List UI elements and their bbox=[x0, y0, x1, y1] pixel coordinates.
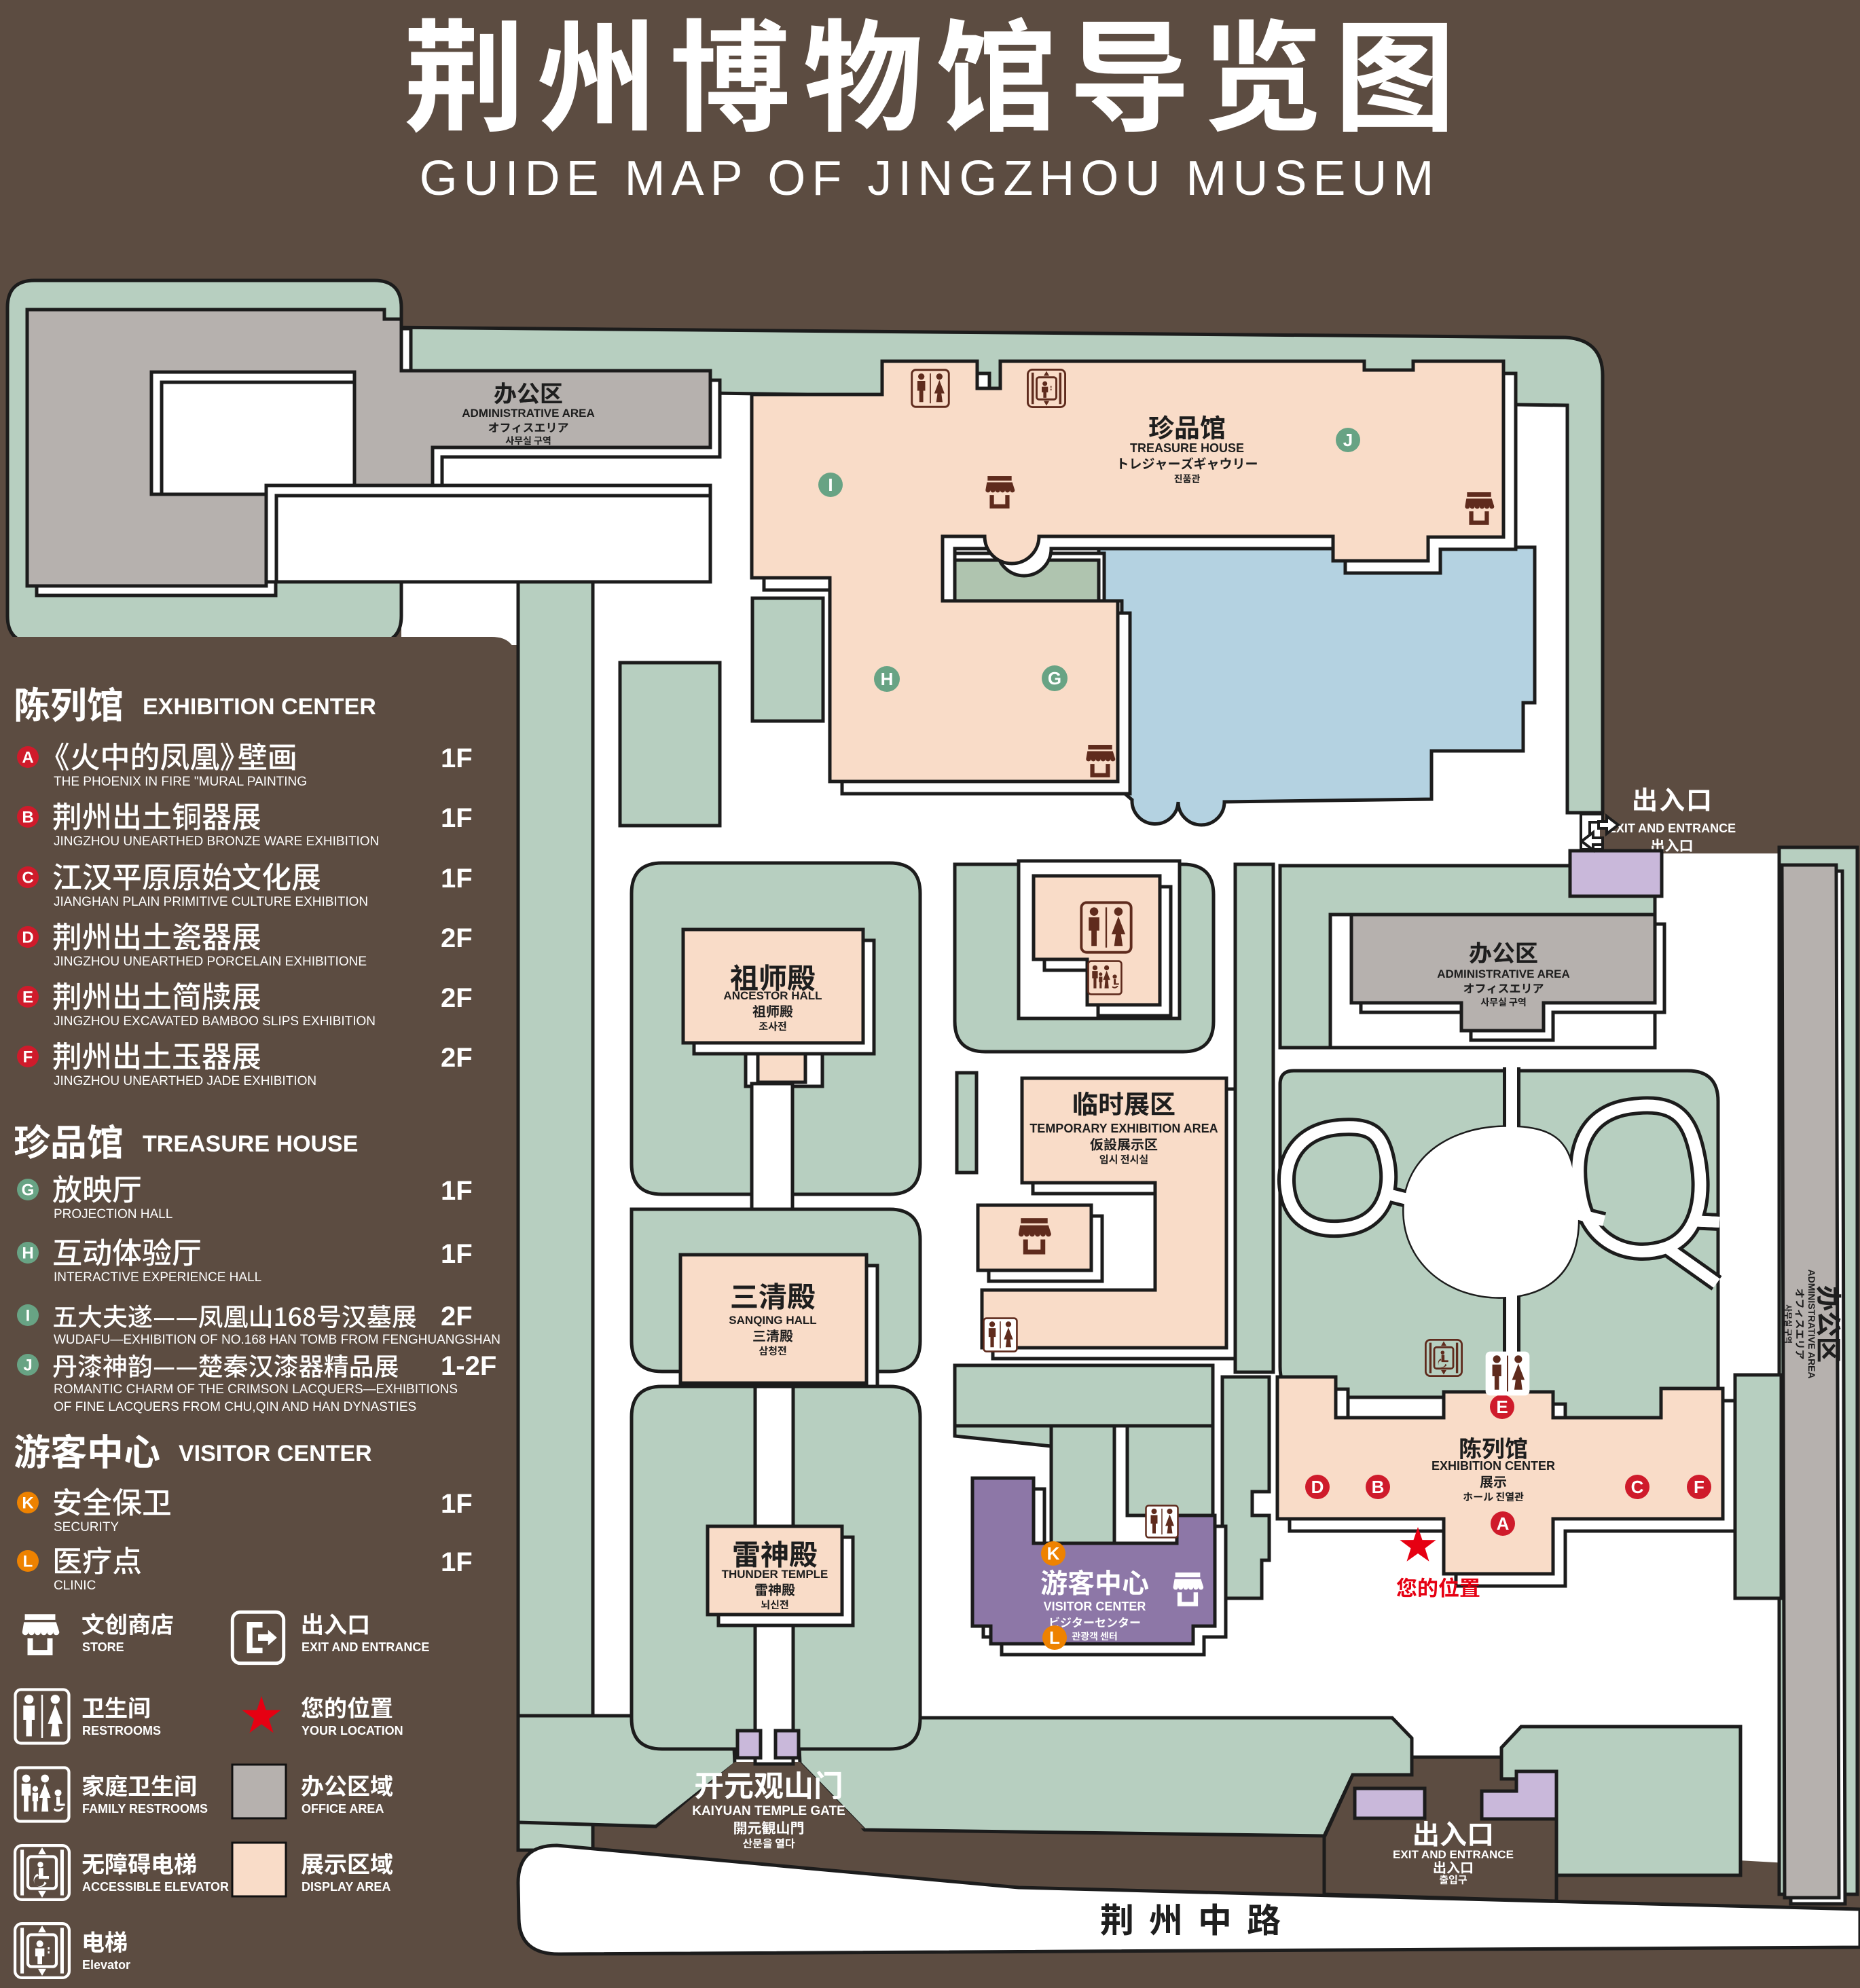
svg-text:WUDAFU—EXHIBITION OF NO.168 HA: WUDAFU—EXHIBITION OF NO.168 HAN TOMB FRO… bbox=[54, 1333, 500, 1347]
svg-text:D: D bbox=[1311, 1477, 1324, 1497]
svg-text:CLINIC: CLINIC bbox=[54, 1579, 96, 1593]
svg-text:OFFICE AREA: OFFICE AREA bbox=[302, 1802, 384, 1816]
svg-text:L: L bbox=[1049, 1627, 1060, 1648]
svg-text:ANCESTOR HALL: ANCESTOR HALL bbox=[723, 989, 822, 1002]
svg-text:ADMINISTRATIVE AREA: ADMINISTRATIVE AREA bbox=[462, 407, 595, 420]
svg-text:ACCESSIBLE ELEVATOR: ACCESSIBLE ELEVATOR bbox=[82, 1880, 229, 1894]
svg-text:2F: 2F bbox=[441, 983, 473, 1013]
svg-text:I: I bbox=[26, 1306, 31, 1325]
svg-text:JINGZHOU UNEARTHED BRONZE WARE: JINGZHOU UNEARTHED BRONZE WARE EXHIBITIO… bbox=[54, 834, 379, 849]
svg-text:THE PHOENIX IN FIRE "MURAL PAI: THE PHOENIX IN FIRE "MURAL PAINTING bbox=[54, 775, 307, 789]
svg-text:ROMANTIC CHARM OF THE CRIMSON: ROMANTIC CHARM OF THE CRIMSON LACQUERS—E… bbox=[54, 1382, 458, 1397]
svg-text:G: G bbox=[1048, 668, 1061, 688]
svg-text:KAIYUAN TEMPLE GATE: KAIYUAN TEMPLE GATE bbox=[692, 1804, 845, 1818]
svg-text:E: E bbox=[1496, 1397, 1508, 1417]
svg-text:SECURITY: SECURITY bbox=[54, 1520, 119, 1534]
svg-text:H: H bbox=[881, 669, 894, 689]
svg-text:J: J bbox=[23, 1356, 32, 1374]
svg-text:YOUR LOCATION: YOUR LOCATION bbox=[302, 1724, 403, 1737]
svg-text:2F: 2F bbox=[441, 1302, 473, 1331]
svg-text:EXIT AND ENTRANCE: EXIT AND ENTRANCE bbox=[302, 1640, 429, 1654]
svg-text:C: C bbox=[22, 868, 33, 887]
svg-text:EXHIBITION CENTER: EXHIBITION CENTER bbox=[1432, 1459, 1555, 1473]
svg-text:TREASURE HOUSE: TREASURE HOUSE bbox=[1130, 441, 1244, 455]
svg-text:DISPLAY AREA: DISPLAY AREA bbox=[302, 1880, 390, 1894]
svg-text:F: F bbox=[23, 1048, 33, 1066]
svg-text:STORE: STORE bbox=[82, 1640, 124, 1654]
svg-text:1F: 1F bbox=[441, 803, 473, 833]
svg-text:1F: 1F bbox=[441, 743, 473, 773]
svg-text:EXIT AND ENTRANCE: EXIT AND ENTRANCE bbox=[1393, 1848, 1514, 1861]
svg-text:SANQING HALL: SANQING HALL bbox=[729, 1314, 816, 1327]
svg-text:INTERACTIVE EXPERIENCE HALL: INTERACTIVE EXPERIENCE HALL bbox=[54, 1270, 261, 1285]
svg-text:B: B bbox=[1372, 1477, 1385, 1497]
svg-text:1F: 1F bbox=[441, 1489, 473, 1519]
svg-text:C: C bbox=[1631, 1477, 1644, 1497]
svg-text:B: B bbox=[22, 808, 33, 826]
svg-text:1F: 1F bbox=[441, 1176, 473, 1206]
svg-text:FAMILY RESTROOMS: FAMILY RESTROOMS bbox=[82, 1802, 208, 1816]
svg-text:VISITOR CENTER: VISITOR CENTER bbox=[1044, 1600, 1146, 1613]
svg-text:L: L bbox=[23, 1552, 33, 1570]
svg-text:I: I bbox=[828, 475, 833, 495]
svg-text:ADMINISTRATIVE AREA: ADMINISTRATIVE AREA bbox=[1806, 1270, 1817, 1379]
svg-text:1F: 1F bbox=[441, 1239, 473, 1269]
svg-text:JIANGHAN PLAIN PRIMITIVE CULTU: JIANGHAN PLAIN PRIMITIVE CULTURE EXHIBIT… bbox=[54, 895, 368, 909]
svg-text:JINGZHOU UNEARTHED PORCELAIN E: JINGZHOU UNEARTHED PORCELAIN EXHIBITIONE bbox=[54, 955, 367, 969]
svg-text:E: E bbox=[22, 988, 33, 1006]
svg-text:JINGZHOU UNEARTHED JADE EXHIBI: JINGZHOU UNEARTHED JADE EXHIBITION bbox=[54, 1074, 316, 1088]
svg-text:TREASURE HOUSE: TREASURE HOUSE bbox=[143, 1131, 358, 1157]
svg-text:J: J bbox=[1343, 430, 1353, 450]
svg-text:ADMINISTRATIVE AREA: ADMINISTRATIVE AREA bbox=[1437, 968, 1570, 980]
svg-text:2F: 2F bbox=[441, 1043, 473, 1073]
svg-text:1-2F: 1-2F bbox=[441, 1351, 496, 1381]
svg-text:A: A bbox=[22, 748, 33, 767]
svg-text:EXHIBITION CENTER: EXHIBITION CENTER bbox=[143, 694, 376, 720]
svg-text:D: D bbox=[22, 928, 33, 946]
svg-text:F: F bbox=[1694, 1477, 1704, 1497]
svg-text:GUIDE MAP OF JINGZHOU MUSEUM: GUIDE MAP OF JINGZHOU MUSEUM bbox=[420, 151, 1440, 206]
svg-text:1F: 1F bbox=[441, 1547, 473, 1577]
svg-text:H: H bbox=[22, 1244, 33, 1262]
svg-text:2F: 2F bbox=[441, 923, 473, 953]
svg-text:A: A bbox=[1497, 1513, 1510, 1534]
svg-text:G: G bbox=[22, 1181, 35, 1199]
svg-text:K: K bbox=[1047, 1543, 1060, 1564]
svg-text:VISITOR CENTER: VISITOR CENTER bbox=[179, 1441, 372, 1467]
svg-text:PROJECTION HALL: PROJECTION HALL bbox=[54, 1207, 172, 1221]
svg-text:TEMPORARY EXHIBITION AREA: TEMPORARY EXHIBITION AREA bbox=[1029, 1122, 1218, 1135]
svg-text:Elevator: Elevator bbox=[82, 1958, 130, 1972]
svg-text:OF FINE LACQUERS FROM CHU,QIN: OF FINE LACQUERS FROM CHU,QIN AND HAN DY… bbox=[54, 1400, 416, 1414]
svg-text:K: K bbox=[22, 1494, 34, 1512]
svg-text:THUNDER TEMPLE: THUNDER TEMPLE bbox=[722, 1568, 828, 1581]
svg-text:JINGZHOU EXCAVATED BAMBOO SLIP: JINGZHOU EXCAVATED BAMBOO SLIPS EXHIBITI… bbox=[54, 1014, 376, 1029]
svg-text:1F: 1F bbox=[441, 864, 473, 894]
svg-text:RESTROOMS: RESTROOMS bbox=[82, 1724, 161, 1737]
svg-text:EXIT AND ENTRANCE: EXIT AND ENTRANCE bbox=[1608, 822, 1736, 835]
